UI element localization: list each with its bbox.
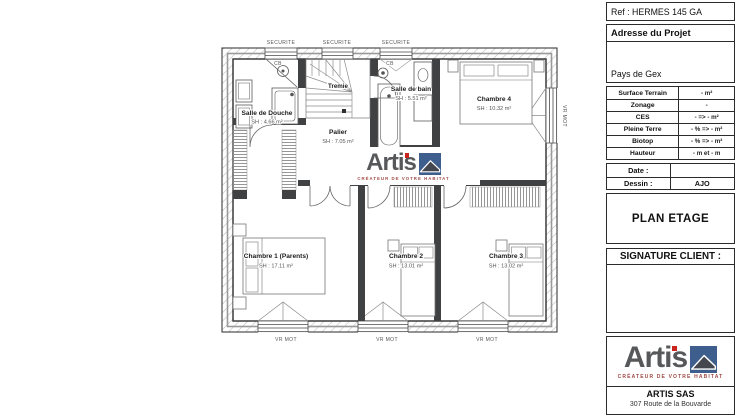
signature-box: SIGNATURE CLIENT :	[606, 248, 735, 333]
spec-value: - m et - m	[679, 148, 734, 159]
bathtub	[378, 84, 400, 148]
sheet: SECURITE SECURITE SECURITE CB CB Tremie …	[0, 0, 750, 415]
table-row: CES - => - m²	[607, 111, 734, 123]
date-label: Date :	[607, 164, 671, 177]
signature-title: SIGNATURE CLIENT :	[607, 249, 734, 265]
spec-value: - % => - m²	[679, 136, 734, 147]
room-label-chambre1: Chambre 1 (Parents)	[244, 253, 309, 260]
project-ref: Ref : HERMES 145 GA	[606, 2, 735, 21]
date-value	[671, 164, 735, 177]
table-row: Date :	[607, 164, 734, 177]
artis-brand-text: Artis	[624, 343, 687, 373]
artis-roof-icon	[419, 153, 441, 175]
windows-bottom	[258, 302, 508, 333]
floor-plan-drawing: SECURITE SECURITE SECURITE CB CB Tremie …	[0, 0, 600, 415]
room-area-chambre2: SH : 13.01 m²	[389, 264, 424, 270]
table-row: Zonage -	[607, 99, 734, 111]
artis-tagline: CRÉATEUR DE VOTRE HABITAT	[618, 374, 724, 380]
spec-value: - m²	[679, 87, 734, 99]
table-row: Dessin : AJO	[607, 177, 734, 190]
room-area-chambre3: SH : 13.02 m²	[489, 264, 524, 270]
company-address: 307 Route de la Bouvarde	[607, 401, 734, 408]
spec-label: Surface Terrain	[607, 87, 679, 99]
room-area-salle-de-douche: SH : 4.66 m²	[251, 120, 283, 126]
company-name: ARTIS SAS	[607, 387, 734, 401]
securite-label-3: SECURITE	[382, 40, 411, 46]
table-row: Pleine Terre - % => - m²	[607, 123, 734, 135]
bed-chambre3	[496, 240, 543, 316]
room-label-chambre4: Chambre 4	[477, 96, 511, 103]
shower-room-fixtures	[236, 59, 298, 128]
artis-roof-icon	[690, 346, 717, 373]
tremie-label: Tremie	[328, 83, 349, 90]
room-area-chambre1: SH : 17.11 m²	[259, 264, 293, 270]
project-address-value: Pays de Gex	[611, 69, 661, 79]
room-area-chambre4: SH : 10.32 m²	[477, 106, 512, 112]
room-label-palier: Palier	[329, 129, 347, 136]
project-address-box: Adresse du Projet Pays de Gex	[606, 24, 735, 83]
artis-tagline: CRÉATEUR DE VOTRE HABITAT	[357, 176, 449, 181]
room-label-chambre3: Chambre 3	[489, 253, 523, 260]
spec-label: Pleine Terre	[607, 124, 679, 135]
spec-value: -	[679, 100, 734, 111]
company-logo-box: Artis CRÉATEUR DE VOTRE HABITAT ARTIS SA…	[606, 336, 735, 415]
bathroom-fixtures	[378, 62, 432, 148]
project-address-title: Adresse du Projet	[607, 25, 734, 42]
spec-label: Zonage	[607, 100, 679, 111]
artis-red-dot	[405, 153, 409, 157]
spec-table: Surface Terrain - m² Zonage - CES - => -…	[606, 86, 735, 160]
artis-red-dot	[672, 346, 677, 351]
room-label-salle-de-douche: Salle de Douche	[242, 110, 293, 117]
vr-mot-label-3: VR MOT	[476, 337, 498, 343]
room-area-salle-de-bain: SH : 5.51 m²	[395, 96, 427, 102]
dessin-label: Dessin :	[607, 178, 671, 190]
room-label-salle-de-bain: Salle de bain	[391, 86, 431, 93]
securite-label-2: SECURITE	[323, 40, 352, 46]
bed-chambre2	[388, 240, 435, 316]
drawing-title: PLAN ETAGE	[606, 193, 735, 244]
spec-label: Hauteur	[607, 148, 679, 159]
room-area-palier: SH : 7.05 m²	[322, 139, 354, 145]
dessin-value: AJO	[671, 178, 735, 190]
spec-label: CES	[607, 112, 679, 123]
spec-label: Biotop	[607, 136, 679, 147]
spec-value: - % => - m²	[679, 124, 734, 135]
company-logo: Artis CRÉATEUR DE VOTRE HABITAT	[618, 343, 724, 381]
vr-mot-label-2: VR MOT	[376, 337, 398, 343]
project-ref-text: Ref : HERMES 145 GA	[611, 7, 702, 17]
artis-brand-text: Artis	[366, 151, 416, 175]
room-label-chambre2: Chambre 2	[389, 253, 423, 260]
vr-mot-label-right: VR MOT	[561, 105, 567, 127]
table-row: Surface Terrain - m²	[607, 87, 734, 99]
cb-label-2: CB	[386, 61, 394, 67]
table-row: Biotop - % => - m²	[607, 135, 734, 147]
table-row: Hauteur - m et - m	[607, 147, 734, 159]
spec-value: - => - m²	[679, 112, 734, 123]
plan-watermark-logo: Artis CRÉATEUR DE VOTRE HABITAT	[327, 147, 480, 185]
vr-mot-label-1: VR MOT	[275, 337, 297, 343]
securite-label-1: SECURITE	[267, 40, 296, 46]
bed-chambre4	[448, 60, 544, 124]
cb-label-1: CB	[274, 61, 282, 67]
title-block-panel: Ref : HERMES 145 GA Adresse du Projet Pa…	[606, 0, 735, 415]
drawing-title-text: PLAN ETAGE	[632, 213, 709, 225]
date-dessin-table: Date : Dessin : AJO	[606, 163, 735, 190]
